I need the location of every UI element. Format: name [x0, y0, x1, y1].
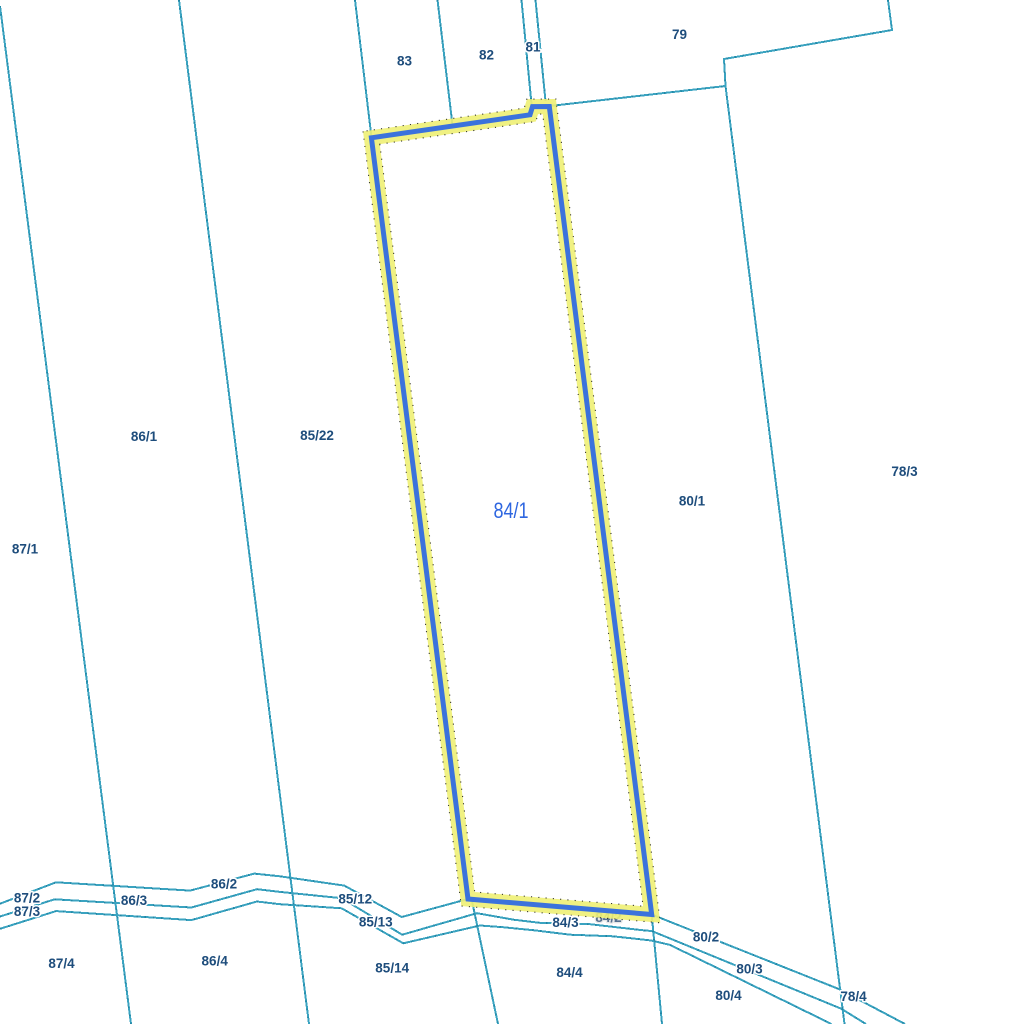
svg-text:82: 82 [479, 48, 494, 63]
svg-text:86/3: 86/3 [121, 893, 148, 908]
svg-text:80/3: 80/3 [736, 962, 763, 977]
svg-text:85/12: 85/12 [338, 892, 372, 907]
svg-text:86/1: 86/1 [131, 429, 158, 444]
svg-text:86/4: 86/4 [202, 953, 229, 968]
svg-text:78/4: 78/4 [840, 989, 867, 1004]
svg-text:87/4: 87/4 [48, 956, 75, 971]
svg-text:84/3: 84/3 [552, 915, 579, 930]
svg-text:79: 79 [672, 27, 687, 42]
svg-text:87/3: 87/3 [14, 904, 41, 919]
svg-text:78/3: 78/3 [891, 464, 918, 479]
svg-text:80/4: 80/4 [715, 988, 742, 1003]
svg-text:85/13: 85/13 [359, 914, 393, 929]
svg-text:83: 83 [397, 54, 413, 69]
svg-text:84/1: 84/1 [493, 499, 528, 523]
svg-text:84/4: 84/4 [556, 965, 583, 980]
svg-text:86/2: 86/2 [211, 877, 237, 892]
svg-text:85/22: 85/22 [300, 428, 334, 443]
svg-text:85/14: 85/14 [375, 961, 409, 976]
svg-text:80/2: 80/2 [693, 930, 719, 945]
svg-text:87/1: 87/1 [12, 542, 39, 557]
svg-text:80/1: 80/1 [679, 494, 706, 509]
svg-text:81: 81 [525, 40, 541, 55]
